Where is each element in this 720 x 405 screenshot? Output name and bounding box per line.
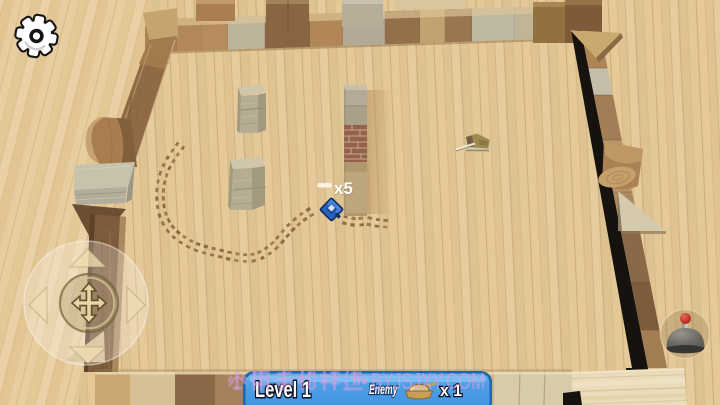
svg-text:BYJSJXY.COM: BYJSJXY.COM: [371, 368, 485, 394]
svg-text:x5: x5: [334, 179, 353, 198]
